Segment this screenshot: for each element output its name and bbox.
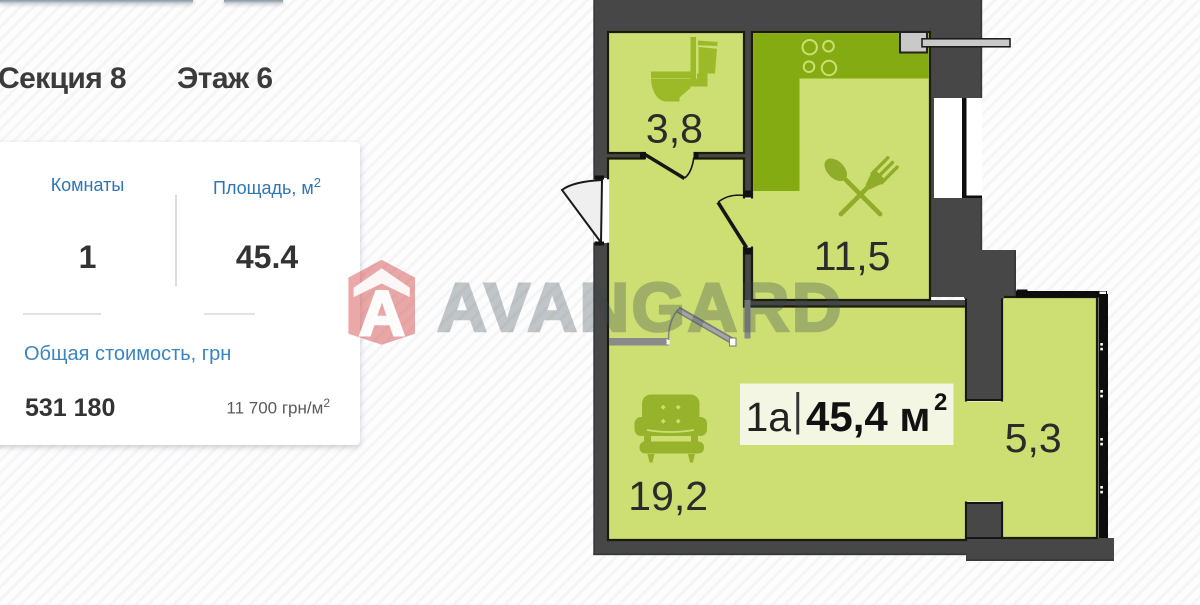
svg-text:2: 2 — [934, 389, 947, 416]
svg-text:A: A — [359, 278, 405, 350]
svg-text:5,3: 5,3 — [1005, 415, 1062, 461]
svg-text:3,8: 3,8 — [646, 106, 703, 152]
svg-text:19,2: 19,2 — [628, 473, 708, 519]
svg-text:1а: 1а — [746, 394, 792, 440]
svg-text:45,4 м: 45,4 м — [806, 393, 930, 440]
